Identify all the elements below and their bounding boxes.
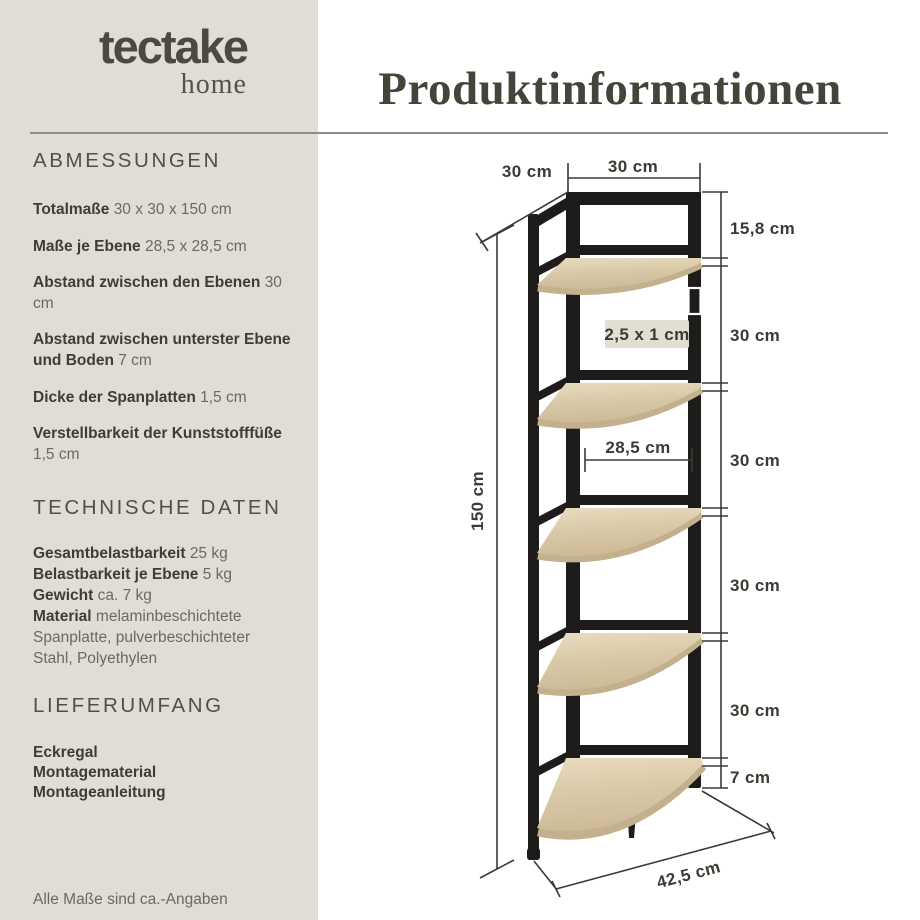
section-heading: ABMESSUNGEN — [33, 149, 291, 173]
shelf-width-dimension-label: 28,5 cm — [605, 438, 670, 457]
spec-value: 25 kg — [190, 545, 228, 562]
spec-label: Dicke der Spanplatten — [33, 389, 196, 406]
height-dimension-label: 150 cm — [468, 471, 487, 531]
included-item: Montageanleitung — [33, 783, 291, 803]
shelf-dimension-diagram: 2,5 x 1 cm — [330, 130, 920, 920]
spec-label: Abstand zwischen den Ebenen — [33, 274, 260, 291]
spec-item: Material melaminbeschichtete Spanplatte,… — [33, 606, 291, 669]
spec-value: 1,5 cm — [200, 389, 247, 406]
brand-sub: home — [99, 71, 247, 99]
spec-item: Belastbarkeit je Ebene 5 kg — [33, 564, 291, 585]
spec-label: Gesamtbelastbarkeit — [33, 545, 186, 562]
sidebar: tectake home ABMESSUNGEN Totalmaße 30 x … — [0, 0, 318, 920]
right-dimension-label: 30 cm — [730, 576, 780, 595]
section-abmessungen: ABMESSUNGEN Totalmaße 30 x 30 x 150 cm M… — [33, 149, 291, 481]
depth-dimension-label: 30 cm — [502, 162, 552, 181]
spec-label: Belastbarkeit je Ebene — [33, 566, 198, 583]
spec-item: Gewicht ca. 7 kg — [33, 585, 291, 606]
spec-label: Material — [33, 608, 92, 625]
right-dimension-label: 15,8 cm — [730, 219, 795, 238]
product-info-sheet: tectake home ABMESSUNGEN Totalmaße 30 x … — [0, 0, 920, 920]
spec-item: Abstand zwischen den Ebenen 30 cm — [33, 273, 291, 314]
spec-value: 1,5 cm — [33, 446, 80, 463]
included-item: Eckregal — [33, 743, 291, 763]
section-technische-daten: TECHNISCHE DATEN Gesamtbelastbarkeit 25 … — [33, 496, 291, 669]
spec-label: Gewicht — [33, 587, 93, 604]
brand-name: tectake — [99, 22, 247, 71]
section-heading: LIEFERUMFANG — [33, 694, 291, 718]
spec-label: Verstellbarkeit der Kunststofffüße — [33, 425, 282, 442]
spec-value: 30 x 30 x 150 cm — [114, 201, 232, 218]
spec-item: Abstand zwischen unterster Ebene und Bod… — [33, 330, 291, 371]
spec-label: Totalmaße — [33, 201, 109, 218]
spec-label: Abstand zwischen unterster Ebene und Bod… — [33, 331, 291, 369]
spec-item: Totalmaße 30 x 30 x 150 cm — [33, 200, 291, 221]
spec-item: Gesamtbelastbarkeit 25 kg — [33, 543, 291, 564]
section-heading: TECHNISCHE DATEN — [33, 496, 291, 520]
right-dimension-label: 30 cm — [730, 701, 780, 720]
spec-value: 5 kg — [203, 566, 232, 583]
right-dimension-label: 7 cm — [730, 768, 770, 787]
spec-value: ca. 7 kg — [98, 587, 152, 604]
right-dimension-label: 30 cm — [730, 326, 780, 345]
page-title: Produktinformationen — [322, 64, 898, 116]
disclaimer-note: Alle Maße sind ca.-Angaben — [33, 891, 228, 909]
spec-value: 7 cm — [118, 352, 152, 369]
right-dimension-label: 30 cm — [730, 451, 780, 470]
spec-item: Maße je Ebene 28,5 x 28,5 cm — [33, 237, 291, 258]
profile-dimension-label: 2,5 x 1 cm — [604, 325, 689, 344]
spec-label: Maße je Ebene — [33, 238, 141, 255]
spec-item: Dicke der Spanplatten 1,5 cm — [33, 388, 291, 409]
brand-logo: tectake home — [99, 22, 247, 99]
diagonal-dimension-label: 42,5 cm — [655, 857, 723, 892]
included-item: Montagematerial — [33, 763, 291, 783]
spec-item: Verstellbarkeit der Kunststofffüße 1,5 c… — [33, 424, 291, 465]
section-lieferumfang: LIEFERUMFANG Eckregal Montagematerial Mo… — [33, 694, 291, 803]
spec-value: 28,5 x 28,5 cm — [145, 238, 247, 255]
width-dimension-label: 30 cm — [608, 157, 658, 176]
